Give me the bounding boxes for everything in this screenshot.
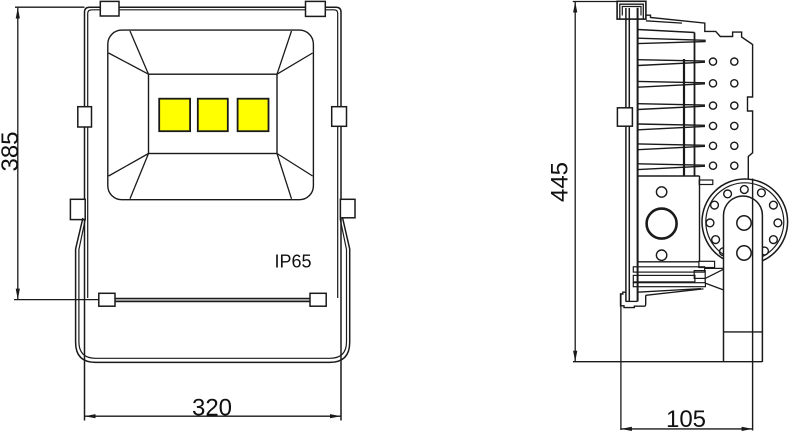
- svg-text:320: 320: [192, 394, 232, 421]
- svg-text:IP65: IP65: [274, 252, 311, 272]
- svg-text:445: 445: [547, 162, 574, 202]
- svg-text:105: 105: [666, 406, 706, 432]
- svg-text:385: 385: [0, 131, 24, 171]
